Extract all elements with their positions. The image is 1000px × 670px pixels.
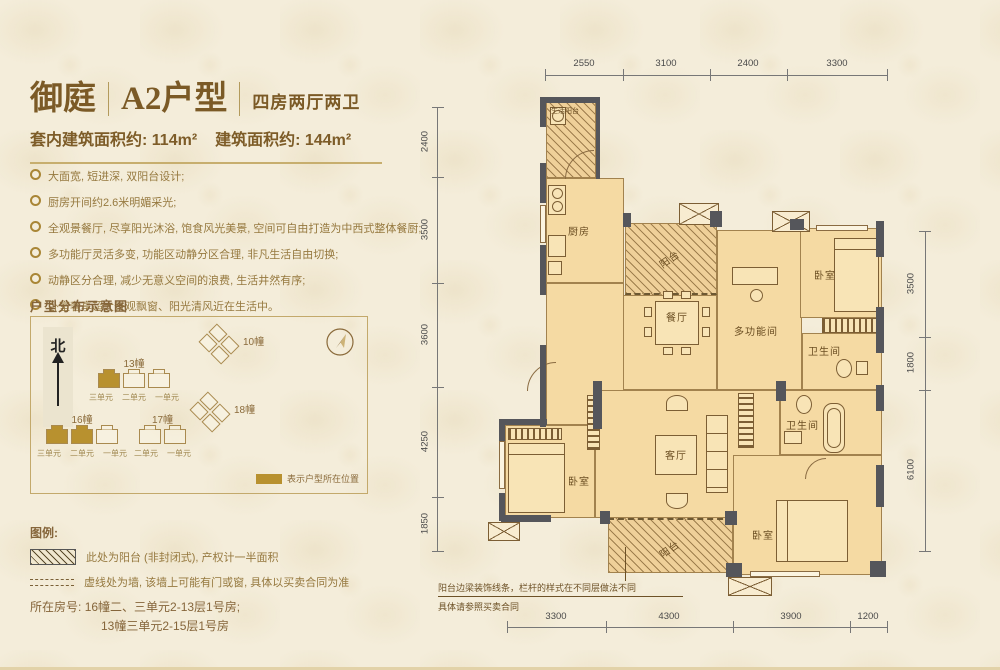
dimension-value: 3500: [420, 205, 431, 255]
dimension-tick: [919, 390, 931, 391]
dimension-tick: [919, 231, 931, 232]
cabinet-icon: [738, 393, 754, 448]
building-wing: [46, 429, 68, 444]
unit-location-swatch: [256, 474, 282, 484]
dimension-tick: [432, 387, 444, 388]
chair-icon: [644, 307, 652, 317]
room-label: 卧室: [752, 527, 774, 542]
building-16: 16幢三单元二单元一单元: [37, 411, 127, 459]
dimension-tick: [887, 69, 888, 81]
fridge-icon: [548, 261, 562, 275]
sitemap-title: 户型分布示意图: [30, 296, 128, 315]
room-multifunction: [717, 230, 802, 390]
dimension-value: 6100: [906, 445, 917, 495]
wall: [542, 97, 600, 103]
title-separator: [108, 82, 109, 116]
feature-item: 多功能厅灵活多变, 功能区动静分区合理, 非凡生活自由切换;: [30, 246, 450, 262]
feature-item: 全观景餐厅, 尽享阳光沐浴, 饱食风光美景, 空间可自由打造为中西式整体餐厨;: [30, 220, 450, 236]
wall: [725, 511, 737, 525]
building-name: 18幢: [234, 401, 255, 416]
window: [540, 205, 546, 243]
dimension-tick: [507, 621, 508, 633]
wall: [501, 515, 551, 522]
dimension-tick: [850, 621, 851, 633]
room-label: 卧室: [814, 267, 836, 282]
shaft-box: [728, 577, 772, 596]
unit-labels: 三单元二单元一单元: [89, 392, 179, 403]
legend-title: 图例:: [30, 524, 430, 541]
dimension-value: 2550: [554, 58, 614, 69]
building-wing: [98, 373, 120, 388]
dimension-value: 2400: [718, 58, 778, 69]
bullet-icon: [30, 221, 41, 232]
dimension-tick: [432, 497, 444, 498]
location-line2: 13幢三单元2-15层1号房: [101, 617, 240, 636]
armchair-icon: [666, 395, 688, 411]
room-label: 多功能间: [734, 323, 778, 338]
chair-icon: [681, 347, 691, 355]
dimension-value: 3600: [420, 310, 431, 360]
dimension-tick: [623, 69, 624, 81]
washbasin-icon: [784, 431, 802, 444]
compass-icon: [325, 327, 355, 357]
wall: [623, 213, 631, 227]
feature-item: 厨房开间约2.6米明媚采光;: [30, 194, 450, 210]
wall: [726, 563, 742, 577]
unit-labels: 二单元一单元: [134, 448, 191, 459]
dimension-value: 3900: [761, 611, 821, 622]
bullet-icon: [30, 169, 41, 180]
room-label: 生活阳台: [551, 106, 579, 116]
sitemap-box: 北 13幢三单元二单元一单元 10幢 16幢三单元二单元一单元 17幢二单元一单…: [30, 316, 368, 494]
sitemap-key: 表示户型所在位置: [256, 472, 359, 485]
dimension-value: 3500: [906, 259, 917, 309]
wall: [876, 307, 884, 353]
dimension-tick: [432, 551, 444, 552]
chair-icon: [663, 291, 673, 299]
wall: [790, 219, 804, 230]
wall: [540, 163, 546, 203]
shaft-box: [488, 522, 520, 541]
bullet-icon: [30, 247, 41, 258]
dimension-line: [925, 231, 926, 551]
unit-location-note: 表示户型所在位置: [287, 472, 359, 485]
room-label: 卧室: [568, 473, 590, 488]
layout-type: 四房两厅两卫: [252, 88, 360, 116]
dimension-tick: [710, 69, 711, 81]
washbasin-icon: [856, 361, 868, 375]
gross-area: 建筑面积约: 144m²: [215, 126, 351, 150]
wardrobe-icon: [508, 428, 562, 440]
chair-icon: [644, 327, 652, 337]
dimension-tick: [545, 69, 546, 81]
chair-icon: [702, 327, 710, 337]
chair-icon: [702, 307, 710, 317]
building-name: 10幢: [243, 333, 264, 348]
building-wing: [123, 373, 145, 388]
room-label: 厨房: [568, 223, 590, 238]
dimension-tick: [432, 283, 444, 284]
unit-labels: 三单元二单元一单元: [37, 448, 127, 459]
window: [499, 441, 505, 489]
dimension-value: 3300: [807, 58, 867, 69]
room-location: 所在房号: 16幢二、三单元2-13层1号房; 13幢三单元2-15层1号房: [30, 598, 240, 636]
dimension-tick: [606, 621, 607, 633]
building-wing: [71, 429, 93, 444]
note-leader-line: [625, 547, 626, 581]
room-label: 客厅: [665, 447, 687, 462]
header: 御庭 A2户型 四房两厅两卫 套内建筑面积约: 114m² 建筑面积约: 144…: [30, 82, 420, 164]
building-cluster: [37, 429, 127, 444]
dimension-value: 3100: [636, 58, 696, 69]
desk-chair-icon: [750, 289, 763, 302]
building-17: 17幢二单元一单元: [134, 411, 191, 459]
wall: [600, 511, 610, 524]
divider: [30, 162, 382, 164]
building-wing: [164, 429, 186, 444]
room-label: 卫生间: [808, 343, 841, 358]
wall: [593, 381, 602, 429]
building-wing: [139, 429, 161, 444]
unit-type-title: A2户型: [121, 83, 227, 116]
wall: [776, 381, 786, 401]
wall: [596, 99, 600, 179]
wall: [540, 345, 546, 427]
chair-icon: [663, 347, 673, 355]
brand-name: 御庭: [30, 83, 96, 116]
window: [750, 571, 820, 577]
dimension-tick: [432, 107, 444, 108]
legend: 图例: 此处为阳台 (非封闭式), 产权计一半面积 虚线处为墙, 该墙上可能有门…: [30, 524, 430, 599]
inner-area: 套内建筑面积约: 114m²: [30, 126, 197, 150]
building-13: 13幢三单元二单元一单元: [89, 355, 179, 403]
bullet-icon: [30, 195, 41, 206]
location-label: 所在房号:: [30, 598, 81, 617]
dimension-tick: [733, 621, 734, 633]
desk-icon: [732, 267, 778, 285]
building-cluster: [189, 391, 230, 432]
north-arrow-icon: [57, 362, 59, 406]
dimension-value: 4250: [420, 417, 431, 467]
plan-note: 阳台边梁装饰线条，栏杆的样式在不同层做法不同 具体请参照买卖合同: [438, 581, 683, 613]
bed-icon: [508, 443, 565, 513]
chair-icon: [681, 291, 691, 299]
wall: [876, 221, 884, 257]
building-name: 16幢: [37, 411, 127, 426]
building-name: 13幢: [89, 355, 179, 370]
wall: [710, 211, 722, 227]
building-wing: [148, 373, 170, 388]
wall: [876, 465, 884, 507]
building-cluster: [89, 373, 179, 388]
location-line1: 16幢二、三单元2-13层1号房;: [85, 598, 240, 617]
dimension-tick: [919, 551, 931, 552]
wall: [540, 245, 546, 295]
room-label: 餐厅: [666, 309, 688, 324]
bullet-icon: [30, 273, 41, 284]
dimension-value: 1850: [420, 499, 431, 549]
dimension-tick: [432, 177, 444, 178]
floor-plan: 生活阳台 厨房 阳台 餐厅 多功能间 卧室 卫生间 卫生间 客厅 卧室 卧室 阳…: [420, 45, 990, 663]
wall: [870, 561, 886, 577]
toilet-icon: [836, 359, 852, 378]
dimension-value: 1800: [906, 338, 917, 388]
sofa-icon: [706, 415, 728, 493]
bathtub-icon: [823, 403, 845, 453]
window: [816, 225, 868, 231]
building-cluster: [134, 429, 191, 444]
wardrobe-icon: [822, 318, 880, 333]
plan-note-line1: 阳台边梁装饰线条，栏杆的样式在不同层做法不同: [438, 581, 683, 597]
legend-item-text: 虚线处为墙, 该墙上可能有门或窗, 具体以买卖合同为准: [84, 574, 349, 590]
bed-icon: [834, 238, 879, 312]
dimension-tick: [887, 621, 888, 633]
dimension-tick: [919, 337, 931, 338]
feature-item: 动静区分合理, 减少无意义空间的浪费, 生活井然有序;: [30, 272, 450, 288]
dimension-value: 2400: [420, 117, 431, 167]
wall: [501, 419, 547, 425]
kitchen-cabinet-icon: [548, 235, 566, 257]
stove-icon: [548, 185, 566, 215]
building-10: 10幢: [203, 331, 235, 357]
dashed-wall-swatch: [30, 579, 74, 586]
armchair-icon: [666, 493, 688, 509]
legend-item-text: 此处为阳台 (非封闭式), 产权计一半面积: [86, 549, 279, 565]
balcony-hatch-swatch: [30, 549, 76, 565]
wall: [540, 97, 546, 127]
plan-note-line2: 具体请参照买卖合同: [438, 597, 683, 613]
room-label: 卫生间: [786, 417, 819, 432]
dimension-value: 1200: [838, 611, 898, 622]
building-18: 18幢: [194, 399, 226, 425]
dimension-tick: [787, 69, 788, 81]
building-wing: [96, 429, 118, 444]
dimension-line: [507, 627, 887, 628]
dimension-line: [545, 75, 887, 76]
feature-item: 大面宽, 短进深, 双阳台设计;: [30, 168, 450, 184]
building-cluster: [198, 323, 239, 364]
bed-icon: [776, 500, 848, 562]
building-name: 17幢: [134, 411, 191, 426]
title-separator: [239, 82, 240, 116]
wall: [876, 385, 884, 411]
toilet-icon: [796, 395, 812, 414]
dimension-line: [437, 107, 438, 551]
